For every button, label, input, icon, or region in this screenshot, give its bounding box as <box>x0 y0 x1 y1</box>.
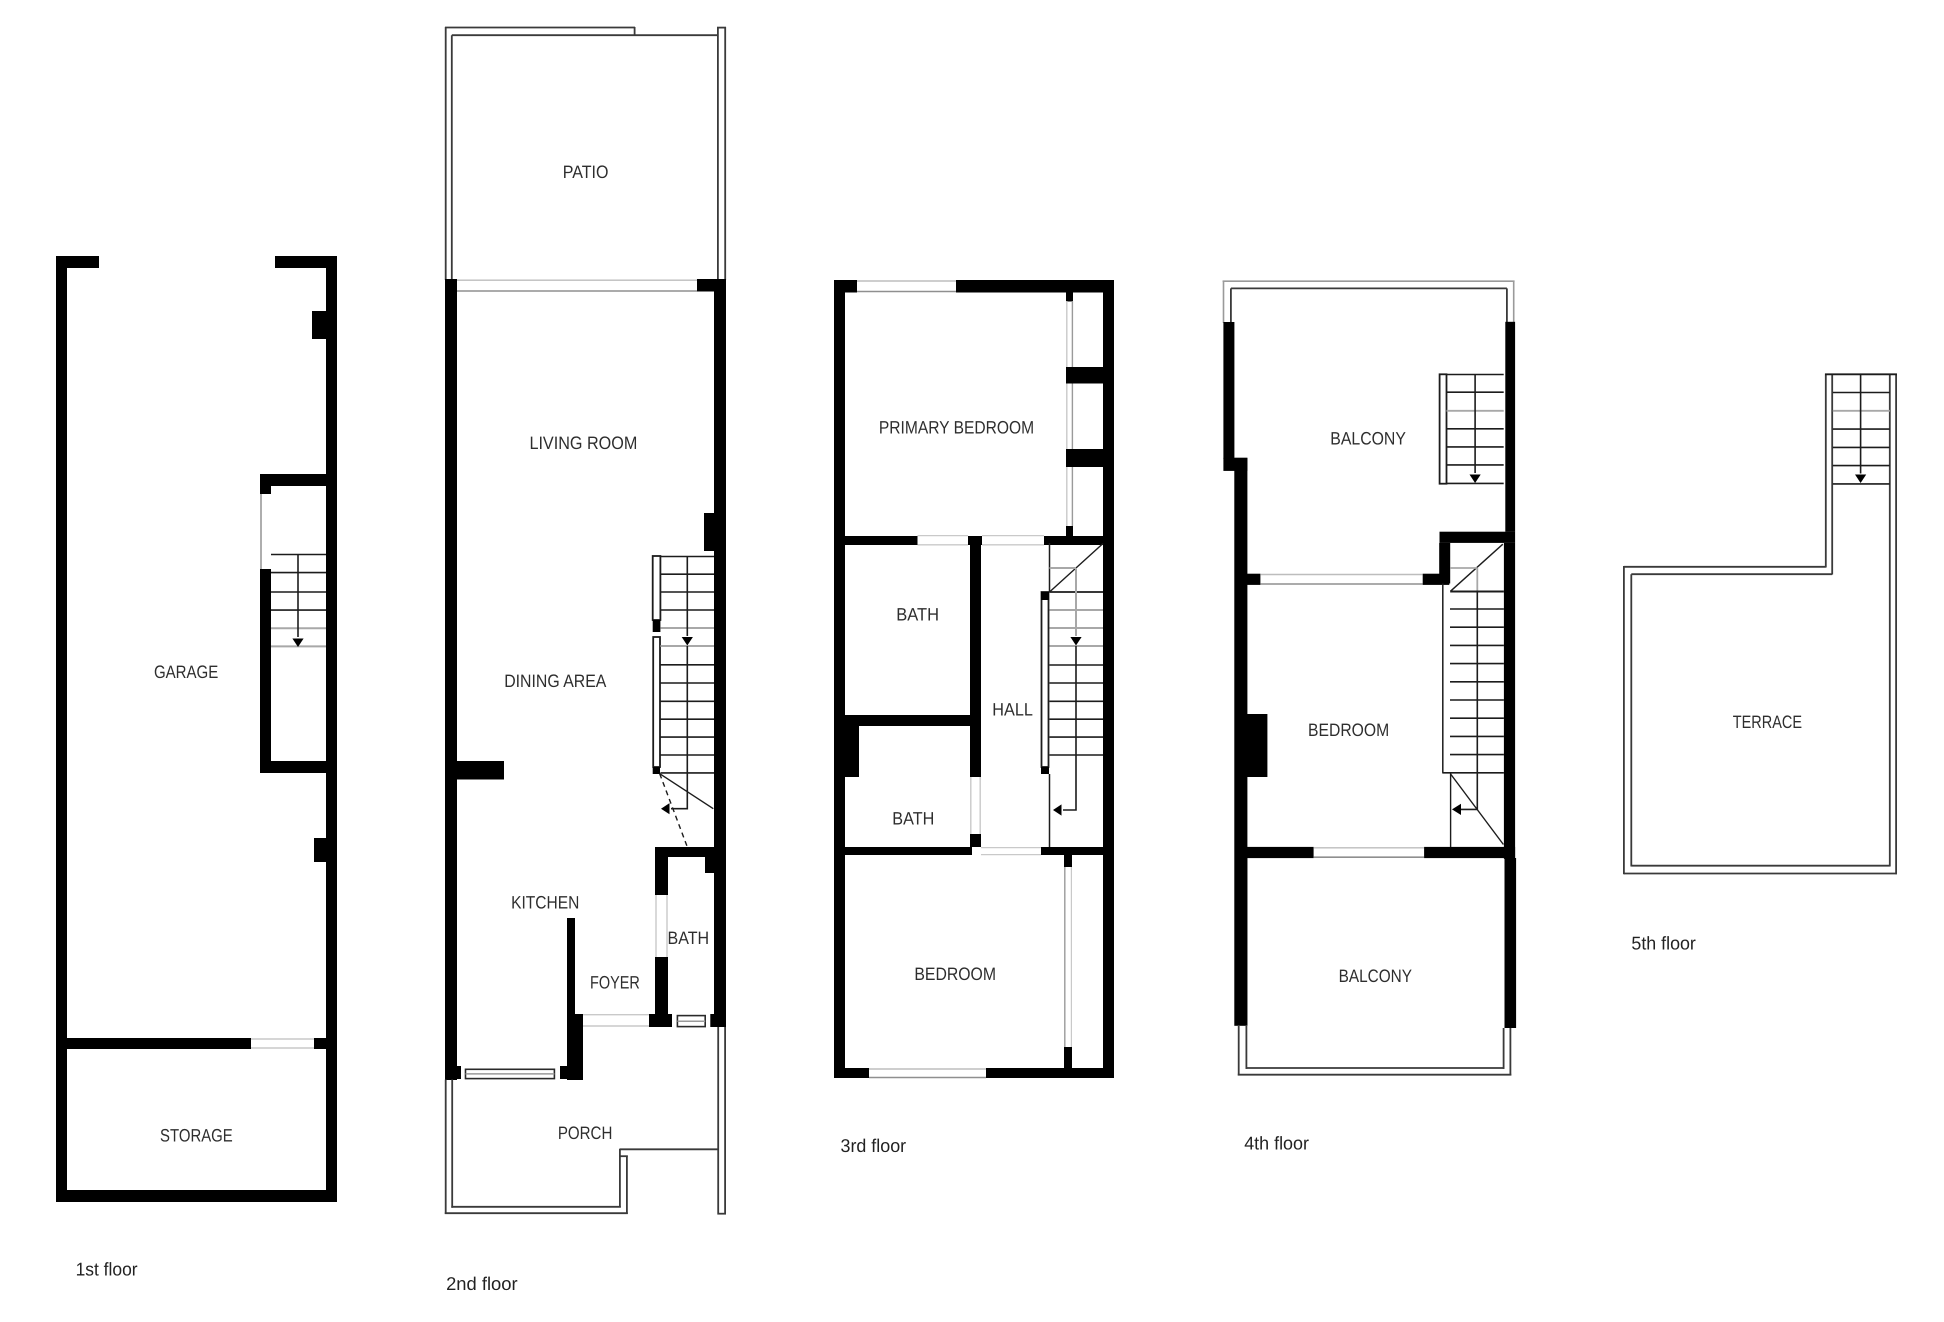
svg-text:TERRACE: TERRACE <box>1733 712 1802 732</box>
svg-text:2nd floor: 2nd floor <box>446 1273 517 1294</box>
svg-text:STORAGE: STORAGE <box>160 1125 233 1145</box>
svg-text:FOYER: FOYER <box>590 973 640 993</box>
svg-text:PATIO: PATIO <box>563 162 609 182</box>
svg-text:BEDROOM: BEDROOM <box>914 964 996 984</box>
svg-text:3rd floor: 3rd floor <box>841 1135 907 1156</box>
svg-text:BALCONY: BALCONY <box>1330 428 1406 448</box>
svg-text:KITCHEN: KITCHEN <box>511 893 579 913</box>
svg-text:BATH: BATH <box>896 604 939 624</box>
svg-text:DINING AREA: DINING AREA <box>504 671 606 691</box>
svg-text:BALCONY: BALCONY <box>1339 966 1412 986</box>
svg-text:GARAGE: GARAGE <box>154 662 218 682</box>
svg-text:BATH: BATH <box>892 809 934 829</box>
svg-text:BATH: BATH <box>668 928 710 948</box>
svg-text:PORCH: PORCH <box>558 1123 613 1143</box>
svg-text:5th floor: 5th floor <box>1631 932 1696 953</box>
svg-text:LIVING ROOM: LIVING ROOM <box>529 433 637 453</box>
svg-text:HALL: HALL <box>992 700 1033 720</box>
svg-text:4th floor: 4th floor <box>1244 1133 1309 1154</box>
svg-text:BEDROOM: BEDROOM <box>1308 720 1389 740</box>
svg-text:PRIMARY BEDROOM: PRIMARY BEDROOM <box>879 417 1034 437</box>
svg-text:1st floor: 1st floor <box>76 1259 138 1280</box>
